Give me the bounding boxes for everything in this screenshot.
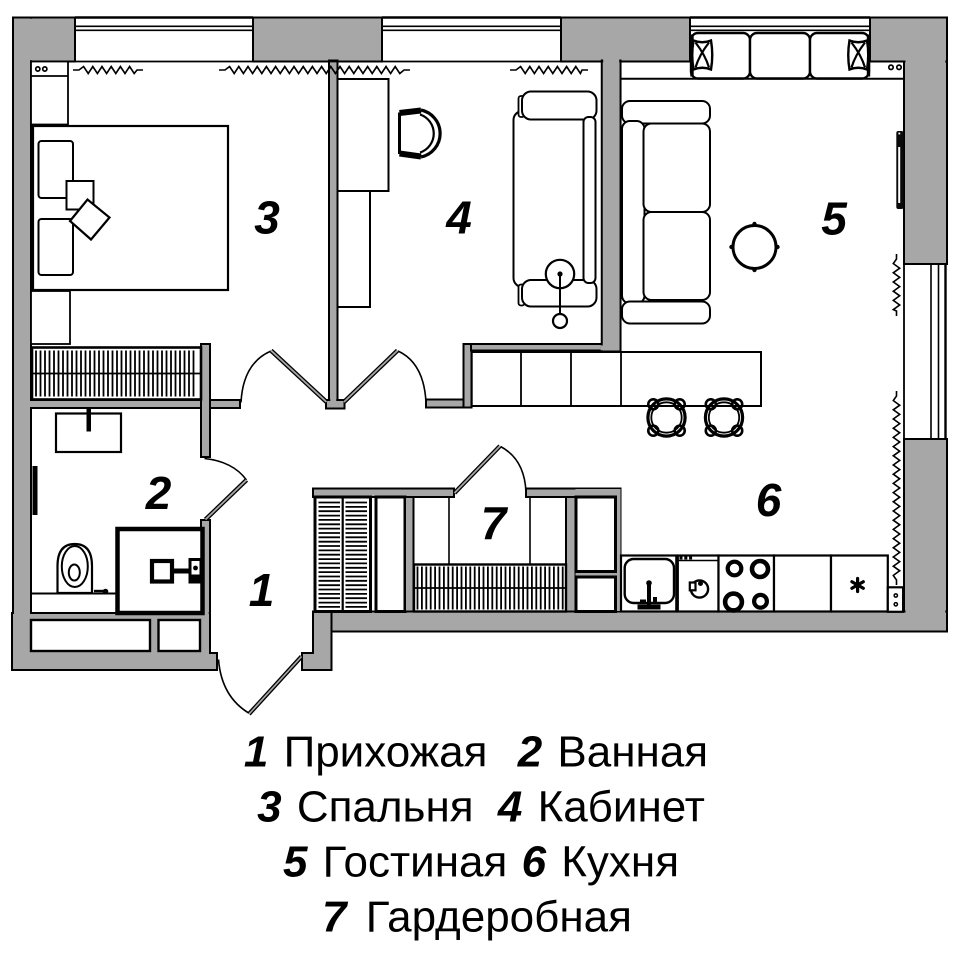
svg-text:3: 3	[254, 192, 280, 244]
svg-text:5: 5	[821, 193, 848, 245]
svg-text:2: 2	[145, 467, 172, 519]
svg-text:1 Прихожая 2 Ванная: 1 Прихожая 2 Ванная	[244, 728, 708, 777]
svg-text:7 Гардеробная: 7 Гардеробная	[322, 893, 632, 942]
svg-text:1: 1	[249, 564, 275, 616]
svg-text:7: 7	[481, 497, 509, 549]
svg-text:5 Гостиная 6 Кухня: 5 Гостиная 6 Кухня	[283, 838, 679, 887]
svg-text:4: 4	[445, 192, 472, 244]
svg-text:6: 6	[756, 474, 782, 526]
